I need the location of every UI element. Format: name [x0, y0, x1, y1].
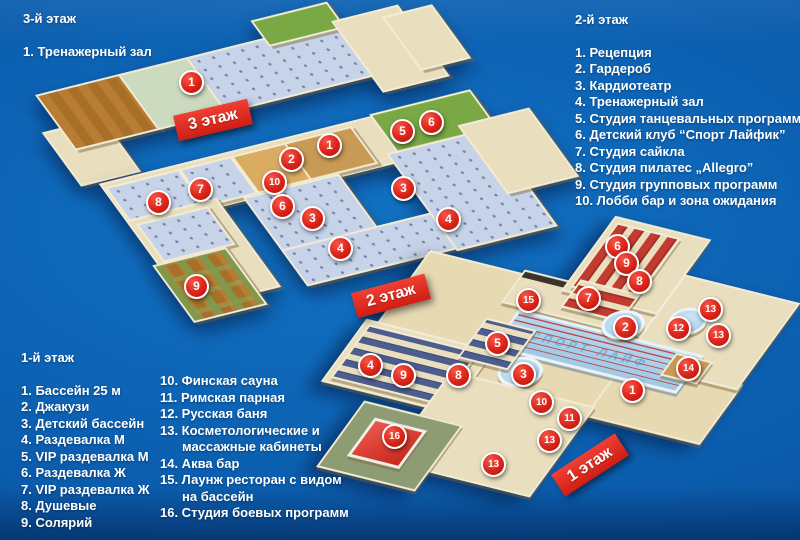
legend-line: 2. Гардероб: [575, 61, 800, 78]
legend-line: 6. Детский клуб “Спорт Лайфик”: [575, 127, 800, 144]
floor1-marker-13: 13: [706, 323, 731, 348]
floor1-marker-11: 11: [557, 406, 582, 431]
legend-line: 3. Детский бассейн: [21, 416, 149, 433]
legend-line: 13. Косметологические и: [160, 423, 349, 440]
floor1-legend-col2: 10. Финская сауна 11. Римская парная 12.…: [160, 373, 349, 522]
legend-line: 4. Раздевалка М: [21, 432, 149, 449]
floor2-marker-2: 2: [279, 147, 304, 172]
floor1-marker-2: 2: [613, 315, 638, 340]
floor1-marker-7: 7: [576, 286, 601, 311]
legend-line: 7. VIP раздевалка Ж: [21, 482, 149, 499]
floor2-marker-3: 3: [300, 206, 325, 231]
floor1-marker-10: 10: [529, 390, 554, 415]
floor1-marker-12: 12: [666, 316, 691, 341]
floor2-marker-4: 4: [436, 207, 461, 232]
legend-line: на бассейн: [160, 489, 349, 506]
floor2-marker-3: 3: [391, 176, 416, 201]
legend-line: 2. Джакузи: [21, 399, 149, 416]
legend-line: 9. Солярий: [21, 515, 149, 532]
legend-line: 11. Римская парная: [160, 390, 349, 407]
floor1-marker-13: 13: [481, 452, 506, 477]
legend-line: 14. Аква бар: [160, 456, 349, 473]
floor1-marker-4: 4: [358, 353, 383, 378]
floor2-marker-4: 4: [328, 236, 353, 261]
legend-line: массажные кабинеты: [160, 439, 349, 456]
legend-line: 1. Тренажерный зал: [23, 44, 152, 61]
floor2-marker-1: 1: [317, 133, 342, 158]
floor2-legend-title: 2-й этаж: [575, 12, 800, 29]
legend-line: 9. Студия групповых программ: [575, 177, 800, 194]
floor2-marker-8: 8: [146, 190, 171, 215]
floor1-marker-8: 8: [446, 363, 471, 388]
floor2-marker-6: 6: [270, 194, 295, 219]
legend-line: 10. Финская сауна: [160, 373, 349, 390]
floor1-marker-3: 3: [511, 362, 536, 387]
floor3-legend-title: 3-й этаж: [23, 11, 152, 28]
legend-line: 12. Русская баня: [160, 406, 349, 423]
club-floorplan-poster: 3-й этаж 1. Тренажерный зал 2-й этаж 1. …: [0, 0, 800, 540]
legend-line: 1. Бассейн 25 м: [21, 383, 149, 400]
floor1-marker-15: 15: [516, 288, 541, 313]
floor1-marker-5: 5: [485, 331, 510, 356]
floor2-marker-6: 6: [419, 110, 444, 135]
legend-line: 10. Лобби бар и зона ожидания: [575, 193, 800, 210]
legend-line: 1. Рецепция: [575, 45, 800, 62]
floor1-legend-title: 1-й этаж: [21, 350, 149, 367]
floor1-marker-9: 9: [391, 363, 416, 388]
legend-line: 8. Студия пилатес „Allegro”: [575, 160, 800, 177]
legend-line: 5. Студия танцевальных программ: [575, 111, 800, 128]
floor2-marker-5: 5: [390, 119, 415, 144]
legend-line: 16. Студия боевых программ: [160, 505, 349, 522]
legend-line: 7. Студия сайкла: [575, 144, 800, 161]
legend-line: 15. Лаунж ресторан с видом: [160, 472, 349, 489]
legend-line: 3. Кардиотеатр: [575, 78, 800, 95]
floor3-marker-1: 1: [179, 70, 204, 95]
floor1-legend: 1-й этаж 1. Бассейн 25 м 2. Джакузи 3. Д…: [21, 350, 149, 531]
floor2-marker-10: 10: [262, 170, 287, 195]
floor1-marker-16: 16: [382, 424, 407, 449]
floor2-legend: 2-й этаж 1. Рецепция 2. Гардероб 3. Кард…: [575, 12, 800, 210]
floor1-marker-14: 14: [676, 356, 701, 381]
floor1-marker-8: 8: [627, 269, 652, 294]
floor1-marker-13: 13: [698, 297, 723, 322]
legend-line: 8. Душевые: [21, 498, 149, 515]
floor1-marker-1: 1: [620, 378, 645, 403]
legend-line: 5. VIP раздевалка М: [21, 449, 149, 466]
floor2-marker-7: 7: [188, 177, 213, 202]
floor3-legend: 3-й этаж 1. Тренажерный зал: [23, 11, 152, 60]
legend-line: 4. Тренажерный зал: [575, 94, 800, 111]
floor1-marker-13: 13: [537, 428, 562, 453]
floor2-marker-9: 9: [184, 274, 209, 299]
legend-line: 6. Раздевалка Ж: [21, 465, 149, 482]
